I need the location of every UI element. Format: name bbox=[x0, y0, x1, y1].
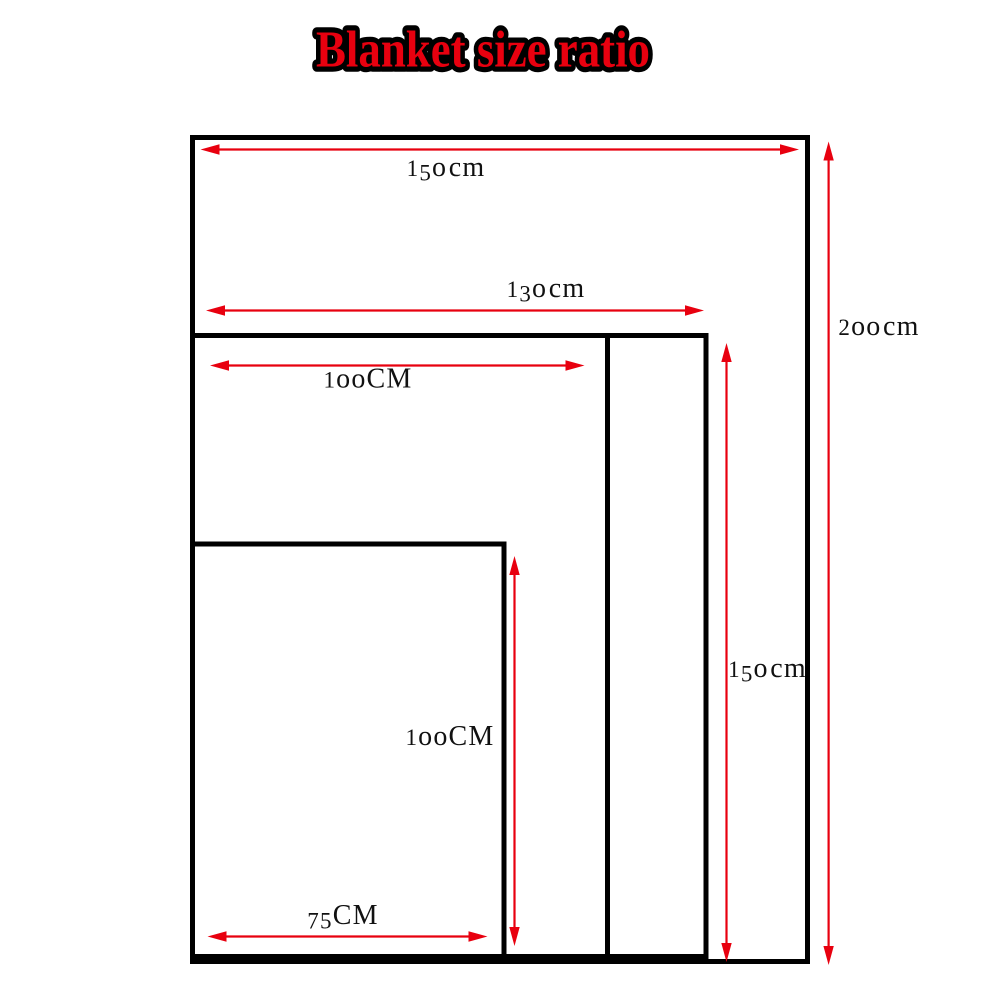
svg-text:2oocm: 2oocm bbox=[838, 311, 919, 342]
svg-text:Blanket size ratio: Blanket size ratio bbox=[316, 22, 650, 79]
svg-text:13ocm: 13ocm bbox=[507, 273, 586, 307]
svg-text:15ocm: 15ocm bbox=[407, 152, 486, 186]
svg-text:1ooCM: 1ooCM bbox=[323, 364, 412, 395]
svg-text:1ooCM: 1ooCM bbox=[405, 721, 494, 752]
svg-text:15ocm: 15ocm bbox=[728, 653, 807, 687]
